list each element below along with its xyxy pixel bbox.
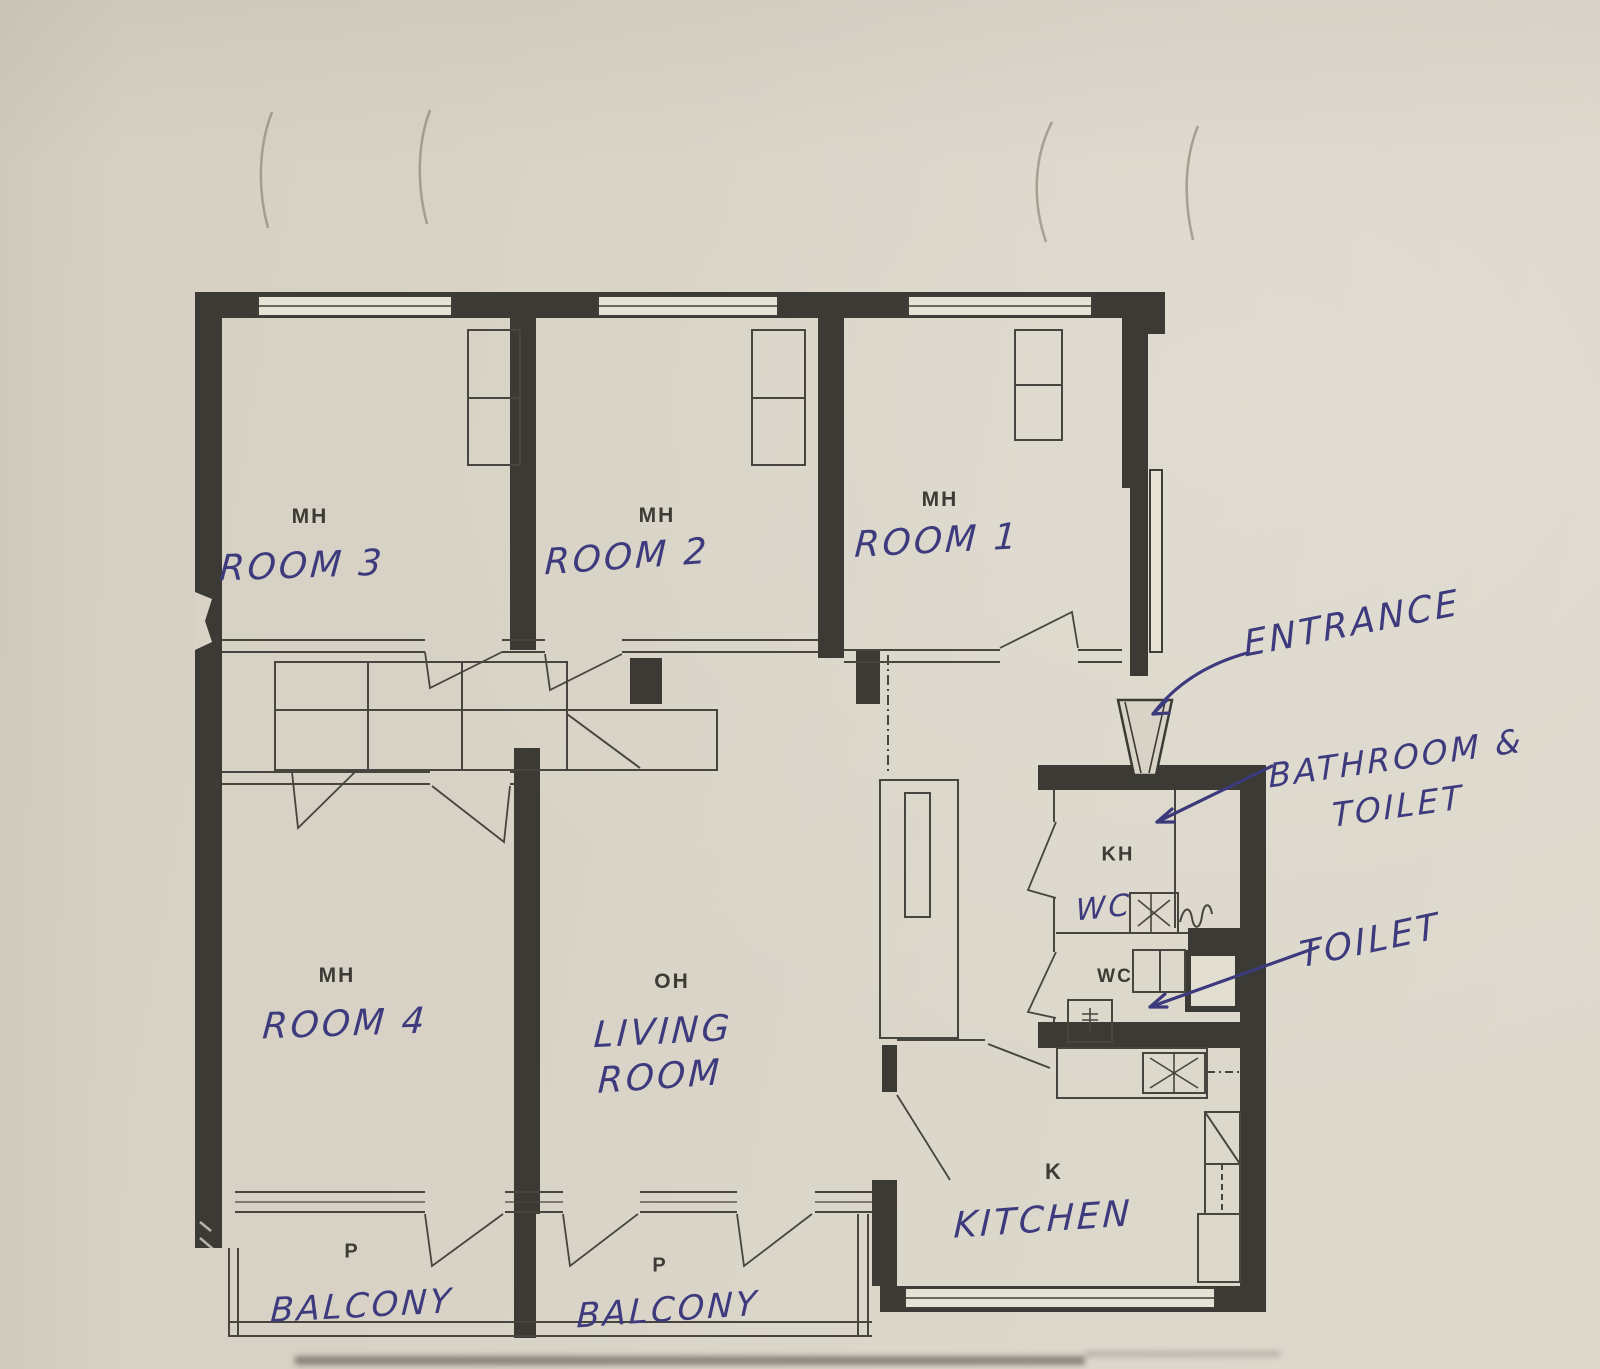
thin-lines [222,330,1240,1336]
room3-handwritten-label: ROOM 3 [218,543,386,590]
room1-handwritten-label: ROOM 1 [853,516,1020,566]
room1-code-label: MH [922,488,959,512]
living-room-handwritten-line2: ROOM [597,1052,723,1102]
kitchen-code-label: K [1045,1159,1063,1185]
balcony-left-code-label: P [344,1241,359,1264]
living-code-label: OH [654,970,690,994]
balcony-right-code-label: P [652,1255,667,1278]
duct-box [1188,953,1238,1009]
walls [195,292,1266,1338]
window-midlines [258,306,1215,1298]
room2-code-label: MH [639,504,676,528]
room4-handwritten-label: ROOM 4 [261,1001,429,1048]
paper-edge-shadow [295,1356,1085,1365]
toilet-code-label: WC [1097,966,1133,988]
room3-code-label: MH [292,505,329,529]
floor-plan-drawing [0,0,1600,1369]
room4-code-label: MH [319,964,356,988]
living-room-handwritten-line1: LIVING [593,1008,734,1056]
paper-edge-shadow-right [1085,1351,1280,1357]
bathroom-wc-handwritten-note: WC [1076,887,1132,928]
bathroom-code-label: KH [1102,844,1135,867]
floor-plan-page: MH MH MH MH OH KH WC K P P ROOM 3 ROOM 2… [0,0,1600,1369]
paper-marks [261,110,1198,242]
windows [258,296,1215,1308]
